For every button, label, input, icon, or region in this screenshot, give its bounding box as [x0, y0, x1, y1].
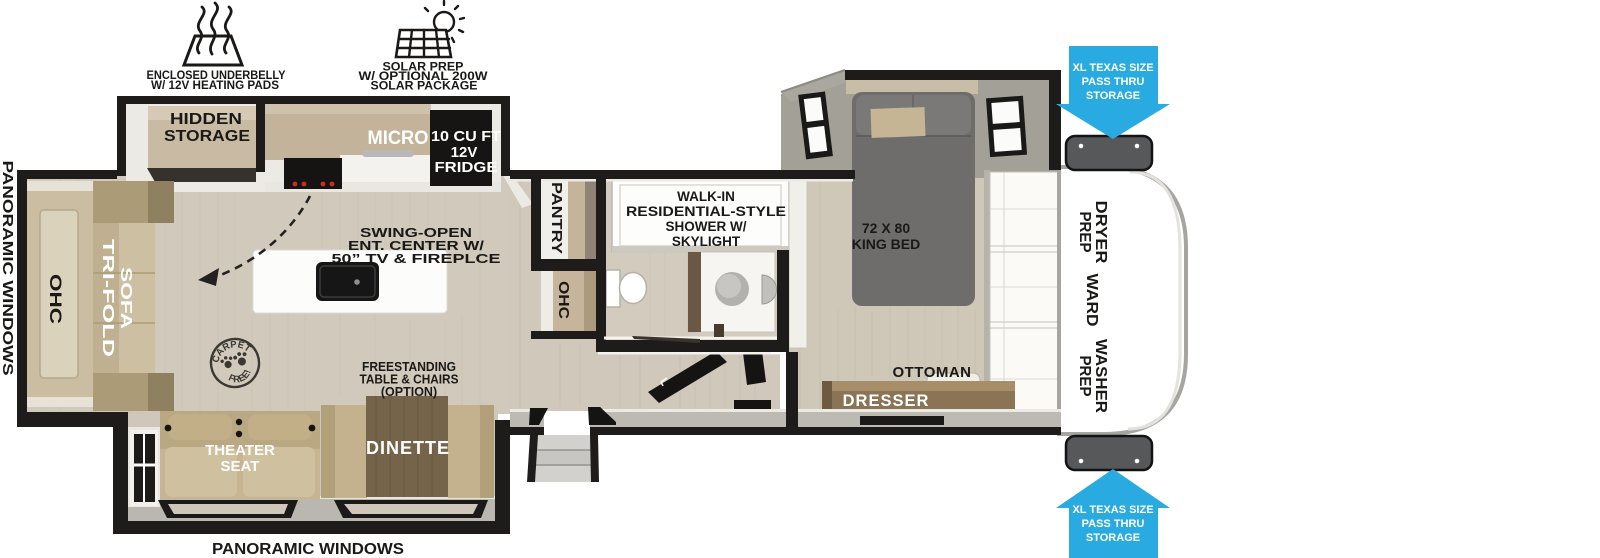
svg-text:OHC: OHC [46, 274, 65, 324]
svg-text:TRI-FOLD: TRI-FOLD [99, 239, 116, 357]
svg-text:(OPTION): (OPTION) [381, 385, 437, 399]
svg-text:PREP: PREP [1076, 212, 1093, 253]
svg-text:SKYLIGHT: SKYLIGHT [672, 234, 741, 249]
svg-text:RESIDENTIAL-STYLE: RESIDENTIAL-STYLE [626, 204, 786, 219]
svg-text:STORAGE: STORAGE [1086, 90, 1140, 102]
svg-text:PANORAMIC WINDOWS: PANORAMIC WINDOWS [212, 541, 404, 558]
svg-text:PREP: PREP [1076, 356, 1093, 397]
svg-text:PASS THRU: PASS THRU [1082, 518, 1145, 530]
svg-text:WASHER: WASHER [1092, 339, 1109, 413]
svg-text:PANTRY: PANTRY [548, 182, 564, 254]
svg-text:10 CU FT: 10 CU FT [431, 128, 501, 145]
svg-text:WALK-IN: WALK-IN [677, 189, 735, 204]
svg-text:WARD: WARD [1083, 274, 1100, 327]
svg-text:STORAGE: STORAGE [164, 128, 250, 145]
svg-text:DRESSER: DRESSER [843, 392, 930, 410]
svg-text:OHC: OHC [555, 281, 572, 319]
svg-text:KING BED: KING BED [852, 236, 920, 252]
svg-text:72 X 80: 72 X 80 [862, 220, 910, 236]
svg-text:W/ 12V HEATING PADS: W/ 12V HEATING PADS [151, 78, 279, 92]
svg-text:DINETTE: DINETTE [366, 438, 450, 458]
svg-text:OTTOMAN: OTTOMAN [892, 364, 971, 381]
svg-text:HIDDEN: HIDDEN [170, 111, 242, 128]
svg-text:FRIDGE: FRIDGE [435, 159, 498, 176]
svg-text:MICRO: MICRO [368, 128, 429, 149]
svg-text:PANORAMIC WINDOWS: PANORAMIC WINDOWS [0, 161, 16, 376]
svg-text:XL TEXAS SIZE: XL TEXAS SIZE [1072, 62, 1153, 74]
svg-text:SOLAR PACKAGE: SOLAR PACKAGE [371, 79, 478, 93]
svg-text:SEAT: SEAT [221, 458, 260, 475]
svg-text:50” TV & FIREPLCE: 50” TV & FIREPLCE [332, 251, 501, 266]
svg-text:THEATER: THEATER [205, 442, 275, 459]
svg-text:SOFA: SOFA [117, 267, 134, 330]
svg-text:XL TEXAS SIZE: XL TEXAS SIZE [1072, 504, 1153, 516]
svg-text:PASS THRU: PASS THRU [1082, 76, 1145, 88]
svg-text:DRYER: DRYER [1092, 201, 1109, 264]
svg-text:SHOWER W/: SHOWER W/ [666, 219, 747, 234]
svg-text:STORAGE: STORAGE [1086, 532, 1140, 544]
